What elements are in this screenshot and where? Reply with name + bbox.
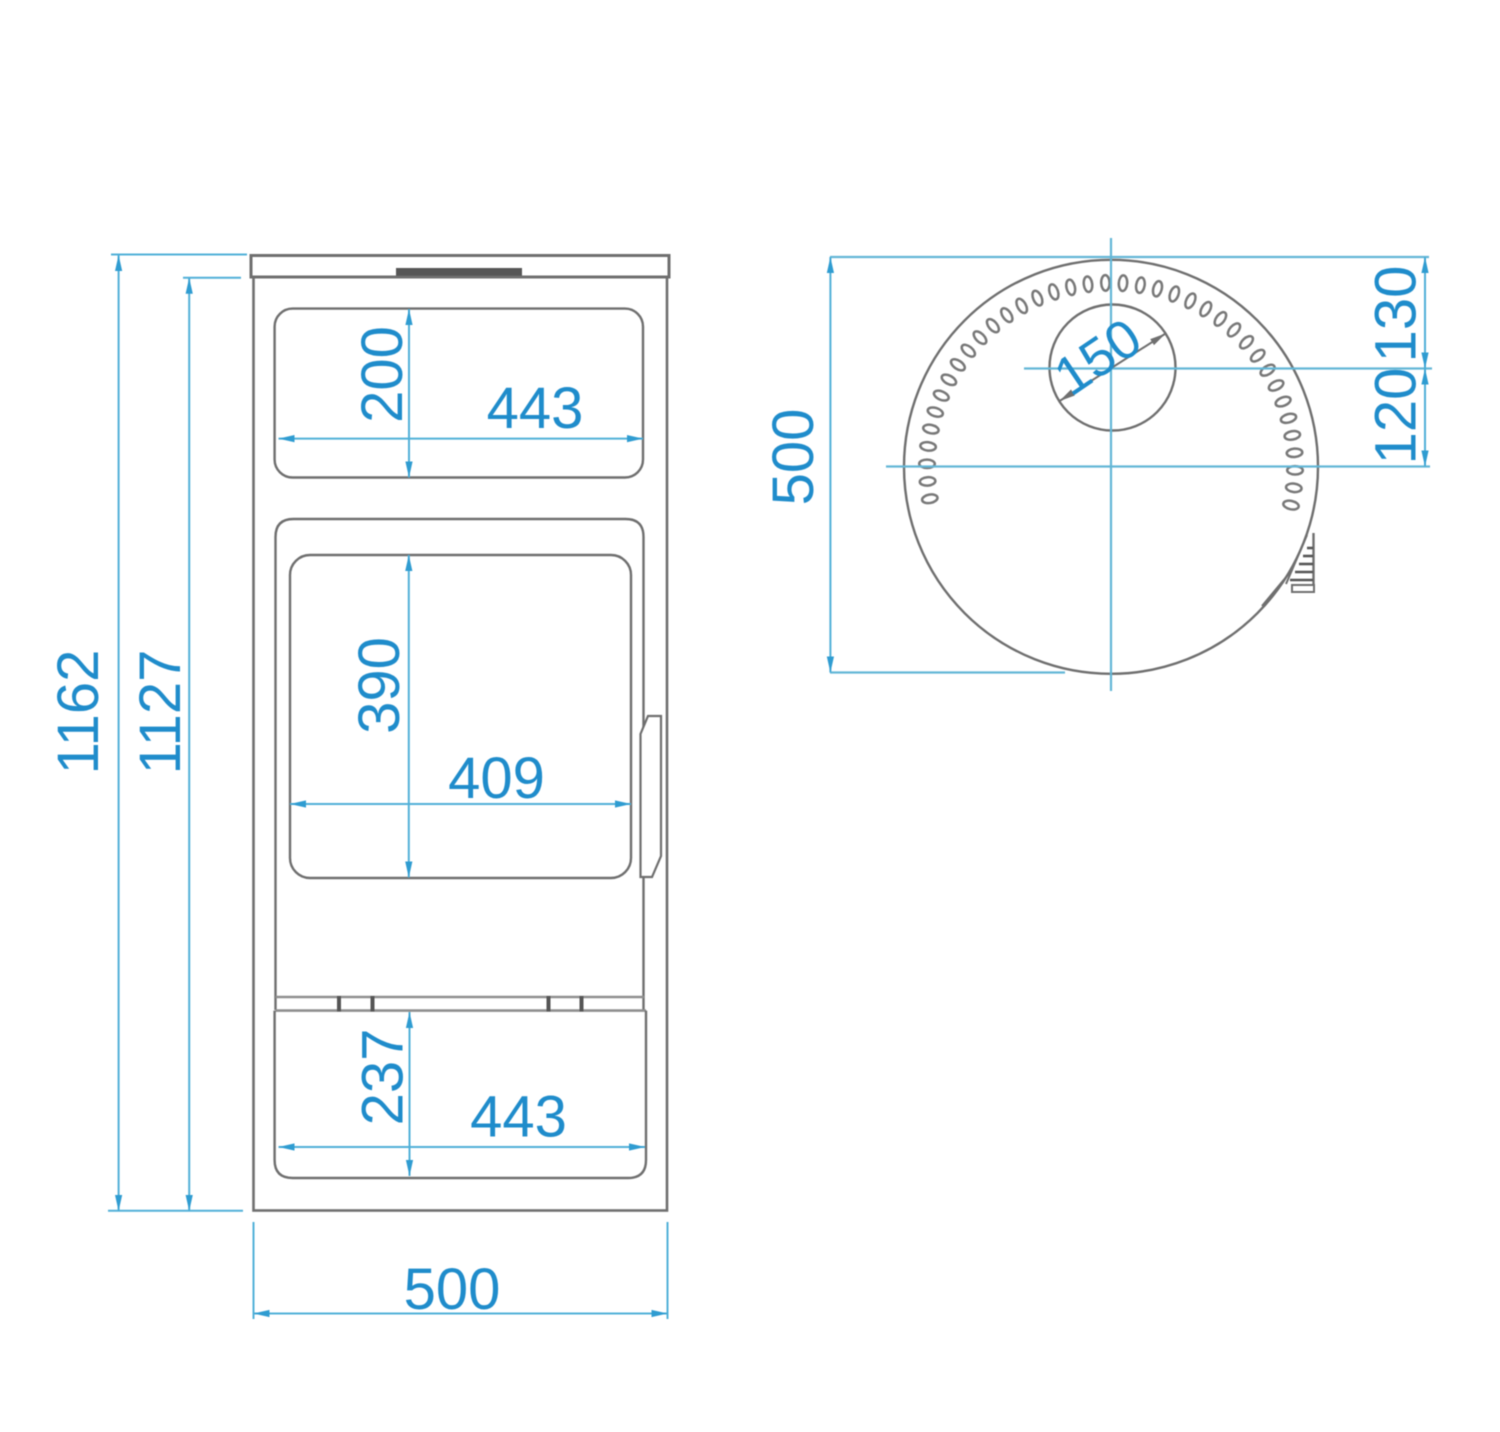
svg-text:409: 409: [448, 746, 545, 811]
svg-text:1127: 1127: [128, 650, 193, 775]
svg-text:237: 237: [351, 1029, 416, 1126]
svg-text:390: 390: [347, 637, 412, 734]
svg-text:443: 443: [470, 1085, 567, 1150]
svg-text:500: 500: [761, 409, 826, 506]
svg-text:130: 130: [1364, 266, 1429, 363]
svg-text:443: 443: [487, 376, 584, 441]
svg-text:1162: 1162: [46, 650, 111, 775]
svg-text:120: 120: [1364, 368, 1429, 465]
svg-text:200: 200: [350, 326, 415, 423]
svg-text:500: 500: [404, 1257, 501, 1322]
